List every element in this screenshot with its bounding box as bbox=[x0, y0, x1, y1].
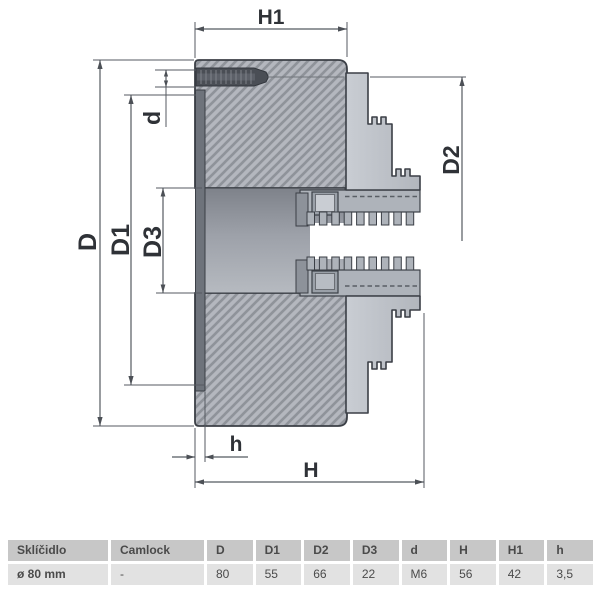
header-cell-sklicidlo: Sklíčidlo bbox=[8, 540, 108, 561]
value-cell-d: M6 bbox=[402, 564, 448, 585]
header-cell-D2: D2 bbox=[304, 540, 350, 561]
lower-rack-teeth bbox=[307, 257, 414, 270]
header-cell-H1: H1 bbox=[499, 540, 545, 561]
value-cell-D1: 55 bbox=[256, 564, 302, 585]
page: H1 D D1 D3 d D2 h H Sklíčidlo Camlock D … bbox=[0, 0, 600, 600]
header-cell-D1: D1 bbox=[256, 540, 302, 561]
upper-rack-end-cap bbox=[296, 193, 308, 226]
value-cell-h: 3,5 bbox=[547, 564, 593, 585]
dim-label-d-thread: d bbox=[139, 111, 165, 125]
value-cell-camlock: - bbox=[111, 564, 204, 585]
lower-jaw bbox=[346, 296, 420, 413]
header-cell-D3: D3 bbox=[353, 540, 399, 561]
dim-label-h-total: H bbox=[303, 459, 318, 482]
header-cell-d: d bbox=[402, 540, 448, 561]
value-cell-H: 56 bbox=[450, 564, 496, 585]
dim-label-d1: D1 bbox=[107, 224, 135, 256]
value-cell-H1: 42 bbox=[499, 564, 545, 585]
header-cell-h: h bbox=[547, 540, 593, 561]
value-cell-D3: 22 bbox=[353, 564, 399, 585]
spec-table: Sklíčidlo Camlock D D1 D2 D3 d H H1 h ø … bbox=[8, 540, 593, 585]
value-cell-D: 80 bbox=[207, 564, 253, 585]
chuck-cross-section-svg: H1 D D1 D3 d D2 h H bbox=[0, 0, 600, 535]
front-opening bbox=[310, 223, 482, 259]
lower-rack-assembly bbox=[296, 257, 420, 296]
dim-label-d3: D3 bbox=[139, 226, 167, 258]
upper-rack-assembly bbox=[296, 190, 420, 226]
header-cell-H: H bbox=[450, 540, 496, 561]
dim-label-d2: D2 bbox=[438, 145, 464, 174]
value-cell-D2: 66 bbox=[304, 564, 350, 585]
header-cell-D: D bbox=[207, 540, 253, 561]
lower-rack-end-cap bbox=[296, 260, 308, 293]
upper-jaw bbox=[346, 73, 420, 190]
value-cell-size: ø 80 mm bbox=[8, 564, 108, 585]
dim-label-h1: H1 bbox=[258, 6, 285, 29]
header-cell-camlock: Camlock bbox=[111, 540, 204, 561]
back-recess bbox=[196, 90, 206, 391]
upper-rack-teeth bbox=[307, 212, 414, 225]
technical-drawing: H1 D D1 D3 d D2 h H bbox=[0, 0, 600, 535]
dim-label-d-outer: D bbox=[74, 233, 102, 251]
body-lower-section bbox=[195, 293, 347, 426]
dim-label-h-recess: h bbox=[230, 433, 243, 456]
